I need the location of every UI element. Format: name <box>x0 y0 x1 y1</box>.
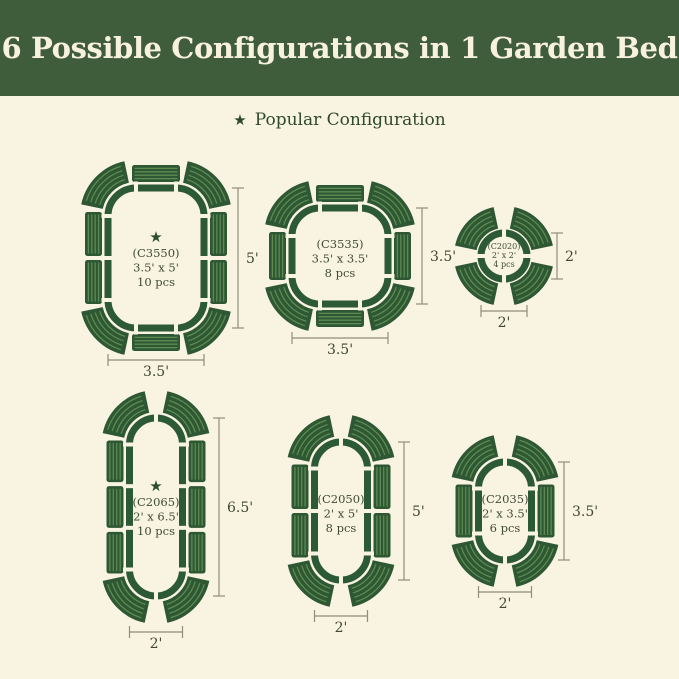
side-panel <box>210 212 227 256</box>
config-size: 3.5' x 5' <box>133 261 179 275</box>
dimension-width: 2' <box>130 626 183 652</box>
dimension-height: 6.5' <box>213 418 253 596</box>
config-code: (C2035) <box>481 492 528 506</box>
side-panel <box>107 532 124 574</box>
configurations-diagram: ★(C3550)3.5' x 5'10 pcs5'3.5'(C3535)3.5'… <box>0 0 679 679</box>
dimension-height: 3.5' <box>416 208 456 304</box>
config-code: (C3550) <box>132 246 179 260</box>
config-c2065: ★(C2065)2' x 6.5'10 pcs6.5'2' <box>107 396 254 652</box>
side-panel <box>394 232 411 280</box>
infographic: ★(C3550)3.5' x 5'10 pcs5'3.5'(C3535)3.5'… <box>0 0 679 679</box>
side-panel <box>85 212 102 256</box>
config-code: (C2020) <box>488 242 521 251</box>
config-size: 3.5' x 3.5' <box>312 252 369 266</box>
config-code: (C3535) <box>316 237 363 251</box>
config-c2020: (C2020)2' x 2'4 pcs2'2' <box>460 212 578 331</box>
side-panel <box>292 513 309 558</box>
config-code: (C2065) <box>132 495 179 509</box>
config-piece-count: 8 pcs <box>326 521 357 535</box>
dimension-height: 2' <box>551 233 578 279</box>
config-c3535: (C3535)3.5' x 3.5'8 pcs3.5'3.5' <box>269 185 456 358</box>
dimension-width-label: 2' <box>150 636 163 652</box>
side-panel <box>107 441 124 483</box>
dimension-width-label: 3.5' <box>327 342 353 358</box>
config-piece-count: 10 pcs <box>137 275 175 289</box>
side-panel <box>189 532 206 574</box>
config-size: 2' x 3.5' <box>482 507 528 521</box>
config-size: 2' x 6.5' <box>133 510 179 524</box>
config-size: 2' x 2' <box>492 251 516 260</box>
dimension-width: 2' <box>315 610 368 636</box>
popular-star-icon: ★ <box>149 228 162 246</box>
dimension-width: 3.5' <box>108 354 204 380</box>
config-c3550: ★(C3550)3.5' x 5'10 pcs5'3.5' <box>85 165 259 380</box>
side-panel <box>210 260 227 304</box>
dimension-height-label: 3.5' <box>572 504 598 520</box>
dimension-height-label: 6.5' <box>227 500 253 516</box>
side-panel <box>292 465 309 510</box>
side-panel <box>85 260 102 304</box>
side-panel <box>538 485 555 538</box>
popular-legend-label: Popular Configuration <box>255 110 446 130</box>
popular-star-icon: ★ <box>233 113 246 128</box>
dimension-height: 5' <box>398 442 425 580</box>
dimension-width: 3.5' <box>292 332 388 358</box>
end-panel <box>132 334 180 351</box>
side-panel <box>374 465 391 510</box>
dimension-width-label: 2' <box>335 620 348 636</box>
end-panel <box>132 165 180 182</box>
config-size: 2' x 5' <box>324 507 359 521</box>
side-panel <box>107 486 124 528</box>
header-banner: 6 Possible Configurations in 1 Garden Be… <box>0 0 679 96</box>
end-panel <box>316 310 364 327</box>
dimension-height-label: 5' <box>246 251 259 267</box>
end-panel <box>316 185 364 202</box>
side-panel <box>189 441 206 483</box>
side-panel <box>374 513 391 558</box>
config-piece-count: 4 pcs <box>493 260 514 269</box>
dimension-width-label: 3.5' <box>143 364 169 380</box>
dimension-height: 3.5' <box>558 462 598 560</box>
dimension-height-label: 3.5' <box>430 249 456 265</box>
config-c2050: (C2050)2' x 5'8 pcs5'2' <box>292 420 425 636</box>
dimension-height: 5' <box>232 188 259 328</box>
side-panel <box>456 485 473 538</box>
dimension-height-label: 5' <box>412 504 425 520</box>
config-c2035: (C2035)2' x 3.5'6 pcs3.5'2' <box>456 440 599 612</box>
dimension-width: 2' <box>479 586 532 612</box>
popular-legend: ★ Popular Configuration <box>0 107 679 133</box>
dimension-width: 2' <box>481 305 527 331</box>
page-title: 6 Possible Configurations in 1 Garden Be… <box>2 31 678 65</box>
dimension-height-label: 2' <box>565 249 578 265</box>
config-piece-count: 6 pcs <box>490 521 521 535</box>
dimension-width-label: 2' <box>498 315 511 331</box>
config-piece-count: 10 pcs <box>137 524 175 538</box>
popular-star-icon: ★ <box>149 477 162 495</box>
side-panel <box>269 232 286 280</box>
side-panel <box>189 486 206 528</box>
config-code: (C2050) <box>317 492 364 506</box>
config-piece-count: 8 pcs <box>325 266 356 280</box>
dimension-width-label: 2' <box>499 596 512 612</box>
